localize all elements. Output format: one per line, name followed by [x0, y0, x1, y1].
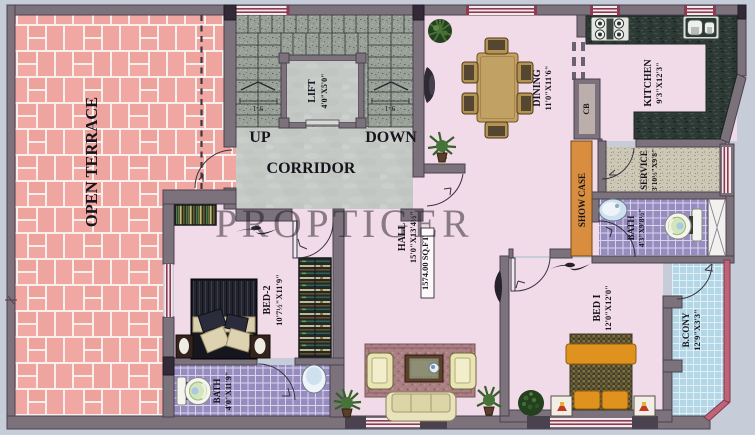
svg-text:11'0"X11'6": 11'0"X11'6" — [543, 66, 553, 111]
svg-text:KITCHEN: KITCHEN — [643, 59, 654, 107]
svg-text:3'10½"X9'8": 3'10½"X9'8" — [650, 149, 659, 191]
svg-text:SHOW CASE: SHOW CASE — [577, 173, 587, 227]
svg-text:PROPTIGER: PROPTIGER — [215, 201, 473, 246]
svg-text:OPEN TERRACE: OPEN TERRACE — [82, 97, 101, 227]
svg-text:10'7½"X11'9": 10'7½"X11'9" — [274, 274, 284, 326]
svg-text:BED I: BED I — [592, 294, 603, 321]
svg-text:DINING: DINING — [532, 69, 543, 106]
svg-text:BATH: BATH — [212, 379, 222, 404]
svg-text:B.CONY: B.CONY — [681, 312, 691, 347]
svg-text:4'3"X9'8½": 4'3"X9'8½" — [637, 209, 646, 248]
svg-text:9'3"X12'3": 9'3"X12'3" — [654, 62, 664, 104]
svg-text:SERVICE: SERVICE — [639, 150, 649, 190]
svg-text:9'-1: 9'-1 — [252, 104, 263, 112]
svg-text:4'0"X5'0": 4'0"X5'0" — [320, 73, 329, 108]
svg-text:BATH: BATH — [626, 216, 636, 241]
svg-text:LIFT: LIFT — [307, 79, 318, 103]
svg-text:UP: UP — [249, 129, 271, 146]
svg-text:CORRIDOR: CORRIDOR — [267, 160, 356, 177]
svg-text:12'9"X3'3": 12'9"X3'3" — [692, 309, 702, 351]
svg-text:BED-2: BED-2 — [262, 286, 273, 315]
svg-text:CB: CB — [582, 103, 591, 115]
svg-text:12'0"X12'0": 12'0"X12'0" — [603, 285, 613, 331]
svg-text:4'0"X11'9": 4'0"X11'9" — [224, 372, 233, 411]
svg-text:DOWN: DOWN — [365, 129, 417, 146]
svg-text:9'-1: 9'-1 — [384, 104, 395, 112]
